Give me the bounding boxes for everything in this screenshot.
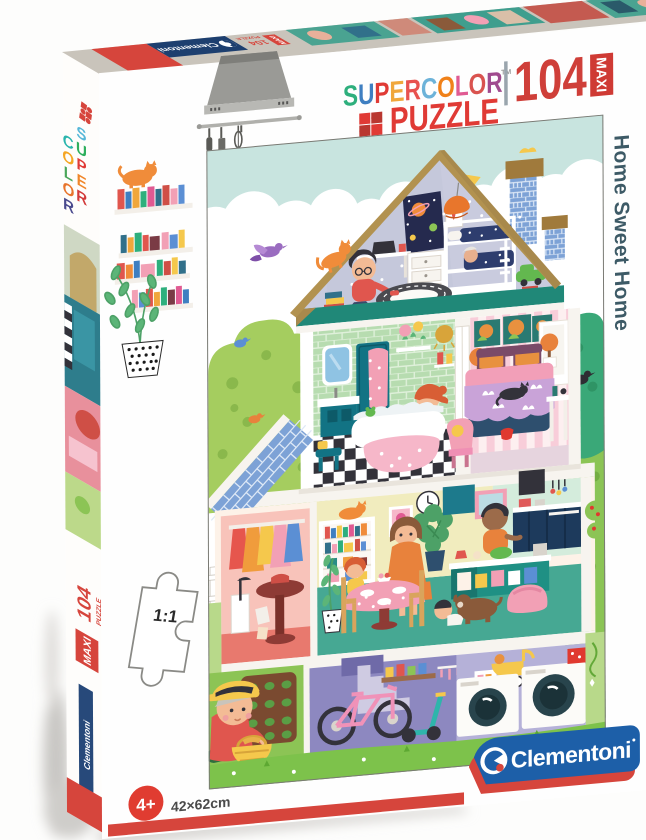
svg-text:MAXI: MAXI (594, 56, 610, 92)
svg-text:Home Sweet Home: Home Sweet Home (609, 134, 633, 333)
svg-text:1:1: 1:1 (152, 606, 179, 627)
svg-text:4+: 4+ (136, 794, 155, 815)
svg-text:104: 104 (514, 44, 587, 114)
svg-text:Clementoni: Clementoni (82, 718, 92, 773)
